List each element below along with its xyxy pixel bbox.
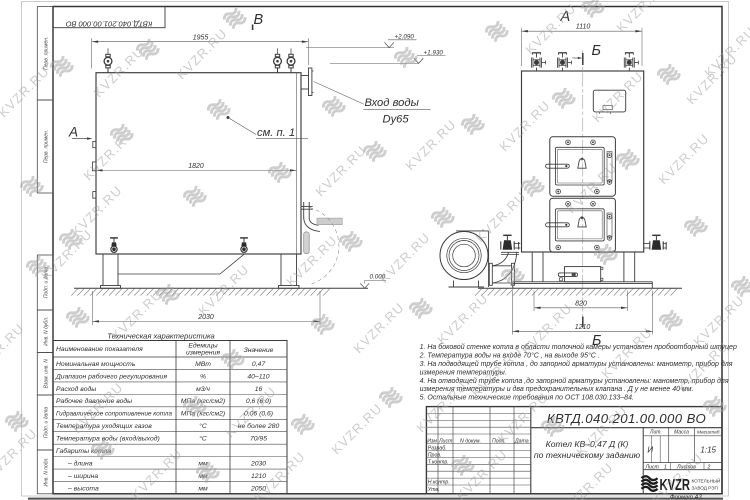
svg-text:820: 820 [575,300,587,307]
svg-text:Лит.: Лит. [649,430,662,436]
svg-text:Диапазон рабочего регулировани: Диапазон рабочего регулирования [55,372,167,380]
svg-text:МВт: МВт [195,361,211,368]
svg-text:2030: 2030 [250,460,266,467]
svg-text:Взам. инв. N: Взам. инв. N [44,359,50,389]
svg-text:Гидравлическое сопротивление к: Гидравлическое сопротивление котла [56,410,172,418]
svg-text:КОТЕЛЬНЫЙ: КОТЕЛЬНЫЙ [692,477,721,484]
svg-text:ЗАВОД РЭП: ЗАВОД РЭП [692,485,718,490]
svg-text:Масштаб: Масштаб [697,430,720,436]
svg-text:А: А [68,125,78,140]
svg-text:В: В [254,12,264,28]
svg-text:1110: 1110 [576,23,591,30]
svg-text:°С: °С [199,435,207,443]
svg-text:1. На боковой стенке котла в: 1. На боковой стенке котла в области топ… [420,343,737,351]
svg-text:– высота: – высота [67,485,99,492]
svg-text:%: % [200,373,206,380]
svg-text:Утв.: Утв. [428,487,440,493]
svg-text:Расход воды: Расход воды [56,385,96,393]
svg-text:Дата: Дата [514,439,529,445]
svg-text:Едемицы: Едемицы [188,341,217,349]
svg-text:3. На подводящей трубе котла: 3. На подводящей трубе котла , до запорн… [420,360,733,368]
svg-text:Наименование показателя: Наименование показателя [56,346,143,353]
svg-text:мм: мм [198,485,208,492]
svg-text:1:15: 1:15 [700,446,716,455]
svg-text:см. п. 1: см. п. 1 [257,127,295,139]
svg-text:И: И [647,446,653,455]
svg-text:N докум.: N докум. [460,439,481,445]
svg-text:– ширина: – ширина [67,473,98,480]
svg-text:Подп. и дата: Подп. и дата [44,407,50,439]
svg-text:70/95: 70/95 [250,436,267,443]
svg-text:Инв. N подл.: Инв. N подл. [44,457,50,486]
svg-text:Номинальная мощность: Номинальная мощность [56,361,136,368]
svg-text:Перв. примен.: Перв. примен. [44,130,50,163]
svg-text:Формат А3: Формат А3 [670,494,702,500]
svg-text:Dy65: Dy65 [383,114,410,126]
svg-text:– длина: – длина [67,459,93,467]
svg-text:Масса: Масса [674,430,689,436]
svg-text:0,47: 0,47 [252,361,265,368]
svg-text:Разраб.: Разраб. [428,446,447,452]
svg-text:1210: 1210 [251,473,266,480]
svg-text:Н.контр.: Н.контр. [428,480,450,486]
svg-text:Изм: Изм [427,439,437,445]
svg-text:+2.090: +2.090 [395,34,415,41]
svg-text:40–110: 40–110 [247,373,269,380]
svg-text:измерения: измерения [186,350,220,357]
svg-text:Б: Б [592,43,601,59]
svg-text:Инв. N дубл.: Инв. N дубл. [44,317,50,346]
svg-text:Вход воды: Вход воды [365,97,420,109]
svg-text:°С: °С [199,422,207,430]
svg-text:Значение: Значение [244,347,274,354]
svg-text:Перв. примен.: Перв. примен. [44,37,50,70]
svg-text:Температура воды (вход/выход): Температура воды (вход/выход) [56,435,160,443]
svg-text:м3/ч: м3/ч [196,386,210,393]
svg-text:1820: 1820 [188,163,204,170]
svg-text:Пров.: Пров. [428,453,442,459]
svg-text:+1.930: +1.930 [424,49,444,56]
svg-text:Т.контр.: Т.контр. [428,459,449,465]
svg-text:КВТД.040.201.00.000 ВО: КВТД.040.201.00.000 ВО [66,20,153,29]
svg-text:Лист: Лист [438,439,453,445]
